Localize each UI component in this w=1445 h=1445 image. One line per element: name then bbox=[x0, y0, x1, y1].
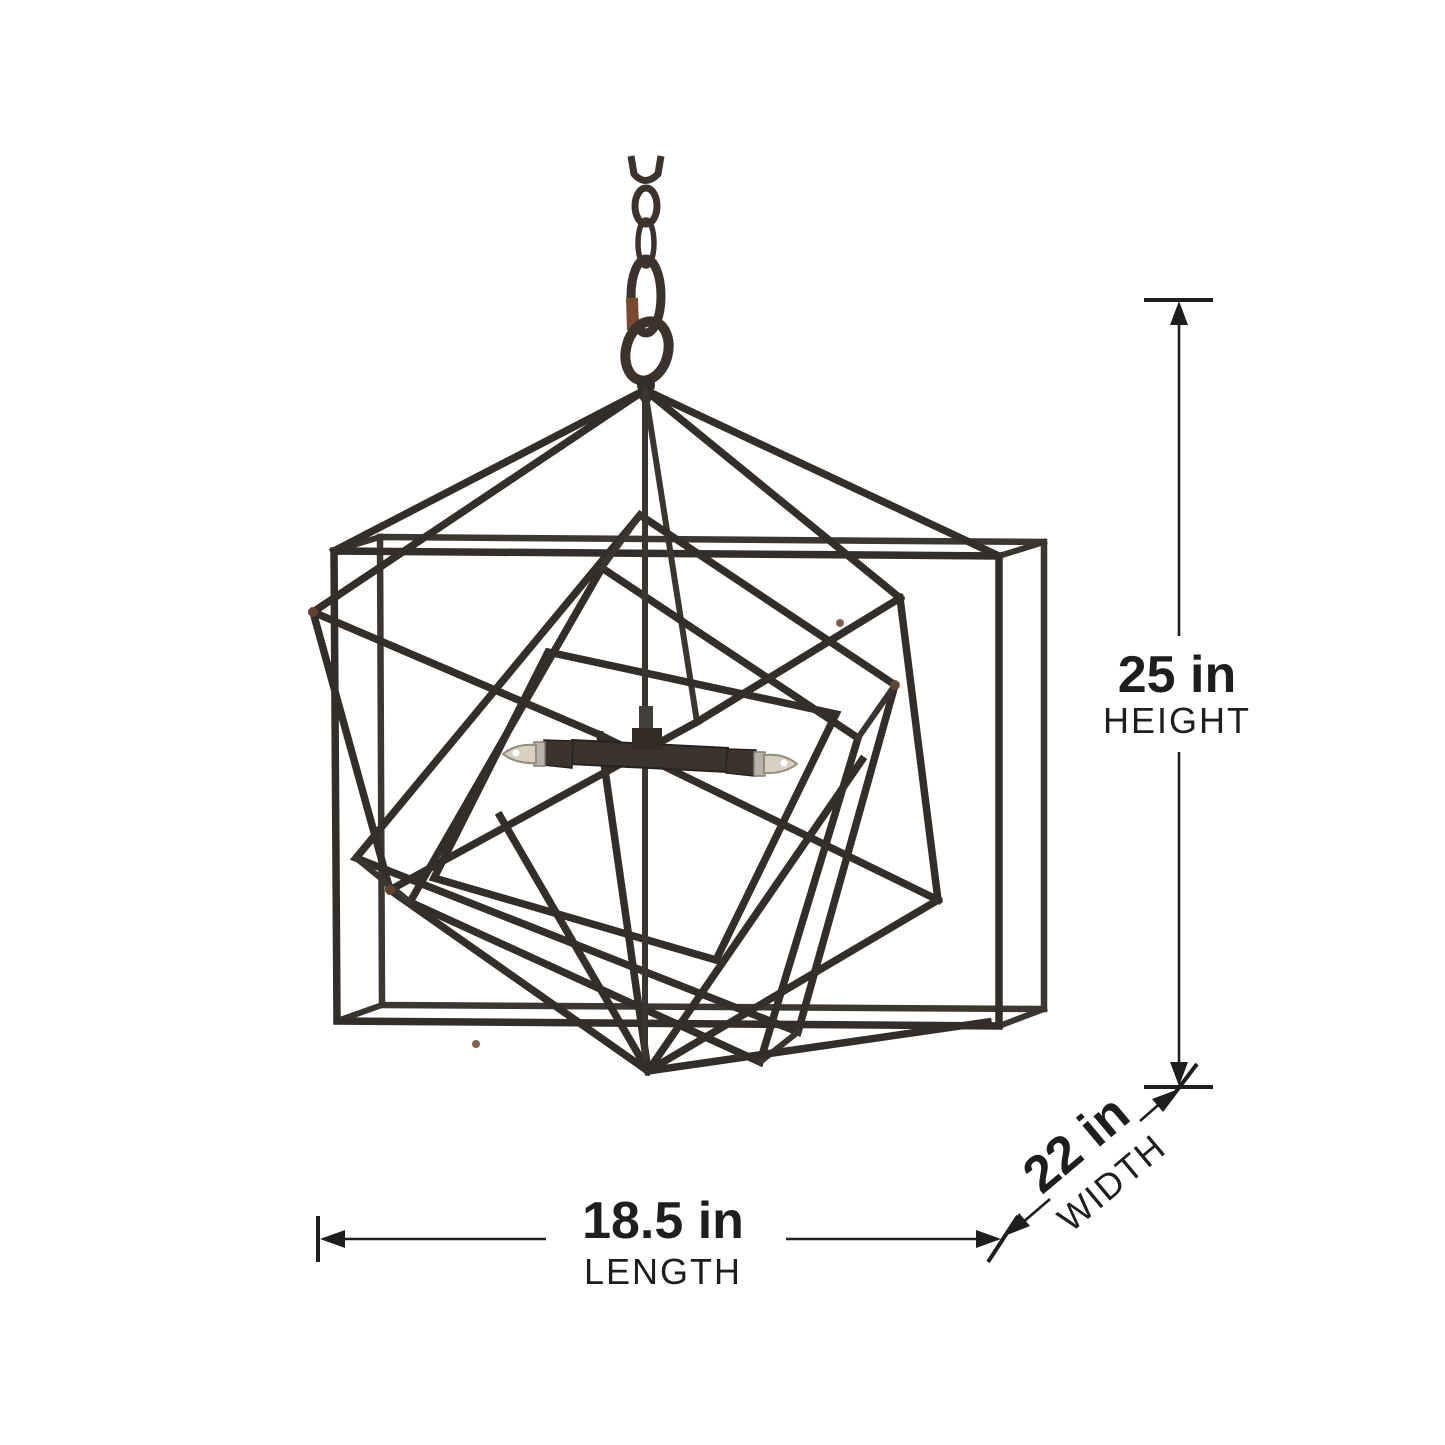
length-value: 18.5 in bbox=[582, 1192, 744, 1250]
height-label: HEIGHT bbox=[1103, 700, 1251, 741]
right-socket bbox=[726, 749, 756, 776]
light-cluster bbox=[503, 706, 797, 776]
length-label: LENGTH bbox=[584, 1251, 742, 1292]
cage-frame bbox=[308, 390, 1044, 1071]
chain-hook bbox=[631, 156, 661, 181]
length-dimension: 18.5 in LENGTH bbox=[318, 1192, 1018, 1292]
left-bulb-highlight bbox=[513, 750, 520, 757]
chandelier-illustration: 25 in HEIGHT 18.5 in LENGTH 22 in WIDTH bbox=[0, 0, 1445, 1445]
left-bulb bbox=[503, 745, 536, 763]
hanging-chain bbox=[619, 156, 674, 408]
right-bulb-highlight bbox=[781, 760, 788, 767]
width-dimension: 22 in WIDTH bbox=[1007, 1064, 1197, 1239]
height-dimension: 25 in HEIGHT bbox=[1103, 300, 1251, 1087]
height-value: 25 in bbox=[1118, 646, 1237, 704]
left-socket bbox=[543, 740, 573, 768]
right-bulb bbox=[764, 755, 797, 773]
tilted-cube-medium bbox=[356, 515, 895, 1062]
screenshot-root: 25 in HEIGHT 18.5 in LENGTH 22 in WIDTH bbox=[0, 0, 1445, 1445]
cluster-hub bbox=[632, 728, 662, 750]
